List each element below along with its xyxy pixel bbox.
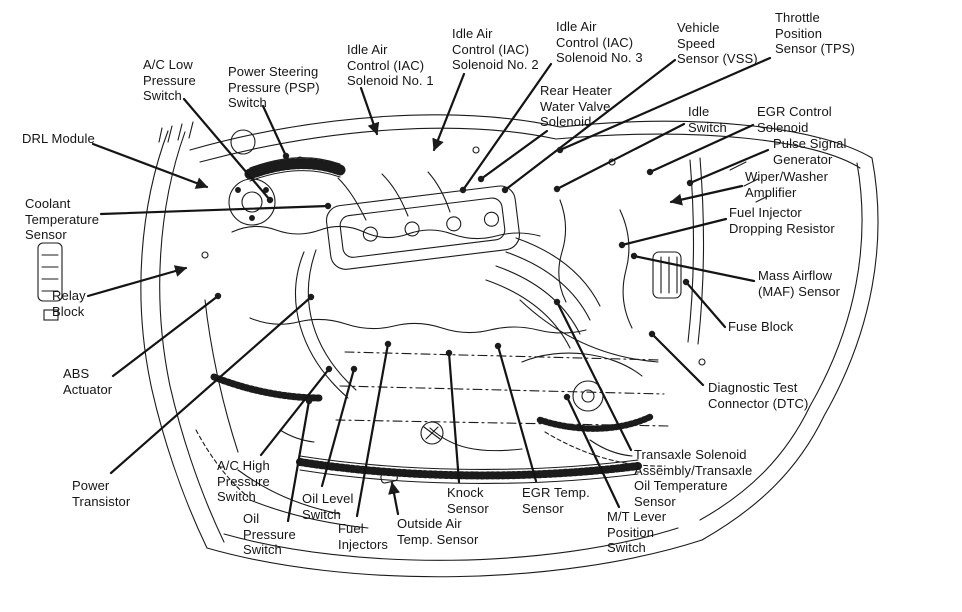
leader-line-ac-low-pressure-switch [184, 99, 270, 200]
connector-dots [215, 147, 693, 404]
leader-line-iac-solenoid-2 [434, 74, 464, 150]
label-power-transistor: Power Transistor [72, 478, 130, 509]
label-egr-control-solenoid: EGR Control Solenoid [757, 104, 832, 135]
label-fuse-block: Fuse Block [728, 319, 793, 335]
label-ac-high-pressure-switch: A/C High Pressure Switch [217, 458, 270, 505]
leader-line-egr-temp-sensor [498, 346, 536, 481]
leader-line-diagnostic-test-connector [652, 334, 703, 385]
label-oil-level-switch: Oil Level Switch [302, 491, 353, 522]
label-iac-solenoid-1: Idle Air Control (IAC) Solenoid No. 1 [347, 42, 434, 89]
leader-line-power-steering-pressure-switch [263, 106, 286, 156]
leader-line-iac-solenoid-1 [361, 88, 377, 134]
leader-line-ac-high-pressure-switch [261, 369, 329, 455]
engine-compartment-diagram: A/C Low Pressure Switch Power Steering P… [0, 0, 962, 612]
label-power-steering-pressure-switch: Power Steering Pressure (PSP) Switch [228, 64, 320, 111]
leader-line-fuel-injectors [357, 344, 388, 516]
leader-line-relay-block [88, 268, 186, 296]
leader-line-knock-sensor [449, 353, 459, 482]
label-coolant-temperature-sensor: Coolant Temperature Sensor [25, 196, 99, 243]
label-transaxle-solenoid-assembly: Transaxle Solenoid Assembly/Transaxle Oi… [634, 447, 752, 509]
label-iac-solenoid-3: Idle Air Control (IAC) Solenoid No. 3 [556, 19, 643, 66]
label-oil-pressure-switch: Oil Pressure Switch [243, 511, 296, 558]
label-ac-low-pressure-switch: A/C Low Pressure Switch [143, 57, 196, 104]
label-vehicle-speed-sensor: Vehicle Speed Sensor (VSS) [677, 20, 758, 67]
label-mass-airflow-sensor: Mass Airflow (MAF) Sensor [758, 268, 840, 299]
leader-line-power-transistor [111, 297, 311, 473]
label-relay-block: Relay Block [52, 288, 86, 319]
label-outside-air-temp-sensor: Outside Air Temp. Sensor [397, 516, 478, 547]
leader-line-rear-heater-water-valve-solenoid [481, 131, 547, 179]
label-idle-switch: Idle Switch [688, 104, 727, 135]
label-fuel-injectors: Fuel Injectors [338, 521, 388, 552]
label-diagnostic-test-connector: Diagnostic Test Connector (DTC) [708, 380, 808, 411]
leader-line-iac-solenoid-3 [463, 64, 551, 190]
label-abs-actuator: ABS Actuator [63, 366, 112, 397]
label-mt-lever-position-switch: M/T Lever Position Switch [607, 509, 666, 556]
label-drl-module: DRL Module [22, 131, 95, 147]
label-rear-heater-water-valve-solenoid: Rear Heater Water Valve Solenoid [540, 83, 612, 130]
leader-line-mass-airflow-sensor [634, 256, 754, 281]
label-pulse-signal-generator: Pulse Signal Generator [773, 136, 846, 167]
leader-line-fuel-injector-dropping-resistor [622, 219, 726, 245]
leader-line-wiper-washer-amplifier [671, 186, 742, 202]
leader-line-coolant-temperature-sensor [101, 206, 328, 214]
label-knock-sensor: Knock Sensor [447, 485, 489, 516]
label-egr-temp-sensor: EGR Temp. Sensor [522, 485, 590, 516]
label-wiper-washer-amplifier: Wiper/Washer Amplifier [745, 169, 828, 200]
leader-line-outside-air-temp-sensor [392, 483, 398, 514]
label-throttle-position-sensor: Throttle Position Sensor (TPS) [775, 10, 855, 57]
label-iac-solenoid-2: Idle Air Control (IAC) Solenoid No. 2 [452, 26, 539, 73]
leader-line-idle-switch [557, 124, 684, 189]
label-fuel-injector-dropping-resistor: Fuel Injector Dropping Resistor [729, 205, 835, 236]
